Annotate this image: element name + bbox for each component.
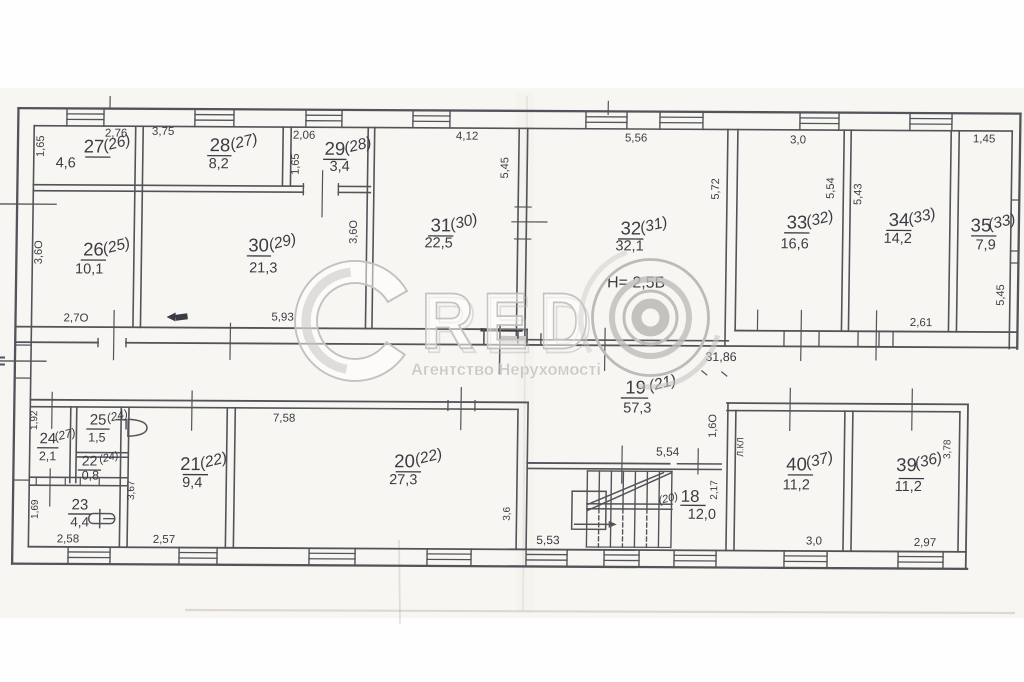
svg-text:5,53: 5,53 [536,533,560,547]
svg-text:3,6: 3,6 [502,506,513,520]
svg-text:8,2: 8,2 [209,156,229,172]
svg-text:3,6O: 3,6O [33,240,45,264]
svg-text:16,6: 16,6 [780,236,808,252]
svg-text:32,1: 32,1 [615,238,643,254]
svg-text:7,58: 7,58 [273,413,296,425]
svg-text:22: 22 [82,452,98,468]
svg-text:4,6: 4,6 [56,155,76,171]
svg-text:E: E [483,277,528,366]
svg-text:1,6O: 1,6O [707,414,719,438]
svg-text:3,0: 3,0 [790,134,806,146]
svg-text:11,2: 11,2 [895,479,922,495]
svg-text:7,9: 7,9 [975,237,995,253]
svg-text:5,45: 5,45 [995,284,1007,305]
svg-text:4,12: 4,12 [456,131,479,143]
svg-text:1,45: 1,45 [973,133,996,145]
svg-text:3,0: 3,0 [806,535,822,547]
svg-text:21,3: 21,3 [249,260,277,276]
svg-text:1,5: 1,5 [88,431,106,445]
svg-text:R: R [421,277,474,366]
svg-text:5,93: 5,93 [271,312,294,324]
svg-text:2,58: 2,58 [57,533,80,545]
svg-text:2,06: 2,06 [293,130,316,142]
svg-text:5,45: 5,45 [499,157,511,178]
svg-text:25: 25 [90,412,107,429]
svg-text:1,65: 1,65 [290,153,302,174]
svg-text:5,56: 5,56 [625,132,648,144]
svg-text:2,76: 2,76 [105,128,128,140]
svg-text:14,2: 14,2 [883,231,911,247]
svg-text:1,69: 1,69 [30,499,41,519]
svg-text:2,7O: 2,7O [63,312,88,324]
svg-text:3,6O: 3,6O [348,220,360,244]
svg-text:5,54: 5,54 [656,445,680,459]
svg-text:Л.КЛ: Л.КЛ [735,437,745,457]
svg-text:5,43: 5,43 [852,183,864,204]
svg-text:5,54: 5,54 [825,177,837,198]
svg-text:3,78: 3,78 [942,439,953,459]
svg-text:2,17: 2,17 [709,480,720,500]
svg-text:2,57: 2,57 [153,534,176,546]
svg-text:12,0: 12,0 [688,507,716,523]
svg-text:10,1: 10,1 [75,261,103,277]
svg-text:1,92: 1,92 [29,410,40,430]
svg-text:9,4: 9,4 [182,475,202,491]
svg-text:1,65: 1,65 [35,135,47,156]
svg-text:3,67: 3,67 [126,480,137,500]
svg-text:2,97: 2,97 [914,537,937,549]
svg-text:2,61: 2,61 [910,317,933,329]
svg-text:18: 18 [681,487,700,506]
svg-text:3,4: 3,4 [329,159,349,175]
svg-text:23: 23 [71,496,88,513]
svg-text:11,2: 11,2 [783,477,810,493]
svg-text:0,8: 0,8 [82,468,100,482]
svg-text:30: 30 [248,234,269,255]
svg-text:Агентство Нерухомості: Агентство Нерухомості [411,361,601,379]
svg-text:4,4: 4,4 [70,514,89,529]
svg-text:5,72: 5,72 [710,178,722,199]
svg-text:22,5: 22,5 [424,235,452,251]
svg-text:20: 20 [394,450,415,471]
svg-text:27,3: 27,3 [389,472,417,488]
svg-text:57,3: 57,3 [623,400,651,416]
svg-text:28: 28 [210,134,231,155]
svg-text:3,75: 3,75 [152,126,175,138]
svg-text:2,1: 2,1 [39,449,57,463]
